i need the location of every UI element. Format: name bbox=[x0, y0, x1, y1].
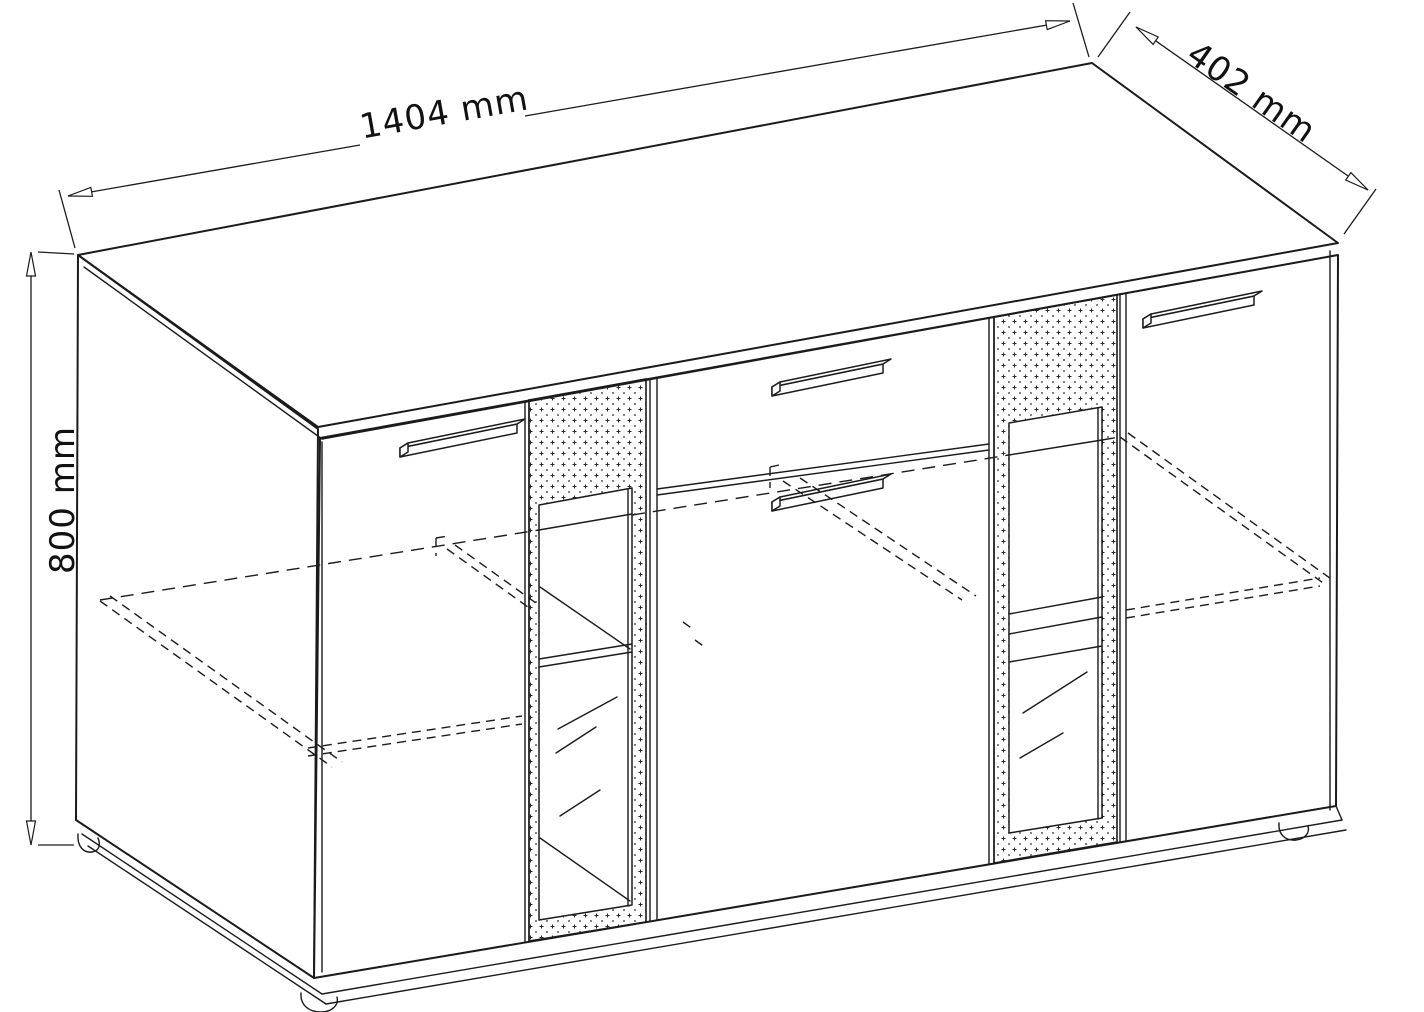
cabinet-body bbox=[76, 63, 1338, 978]
height-arrow-bottom bbox=[27, 821, 36, 845]
sideboard-dimension-diagram: 1404 mm 402 mm 800 mm bbox=[0, 0, 1424, 1012]
width-dimension-label: 1404 mm bbox=[357, 78, 532, 147]
height-dimension-label: 800 mm bbox=[43, 426, 83, 574]
depth-arrow-top bbox=[1136, 27, 1158, 44]
glass-door-left-window bbox=[539, 488, 632, 920]
technical-drawing-page: 1404 mm 402 mm 800 mm bbox=[0, 0, 1424, 1012]
depth-dimension-label: 402 mm bbox=[1179, 34, 1323, 152]
height-extension-line-top bbox=[38, 252, 74, 254]
depth-extension-line-left bbox=[1098, 12, 1130, 57]
glass-door-right bbox=[994, 295, 1117, 863]
width-extension-line-left bbox=[59, 190, 75, 248]
width-arrow-left bbox=[68, 187, 92, 196]
width-dimension-line-a bbox=[68, 145, 360, 196]
width-extension-line-right bbox=[1073, 3, 1089, 57]
foot-front-right bbox=[1279, 823, 1309, 840]
depth-extension-line-right bbox=[1344, 189, 1376, 234]
glass-door-left bbox=[529, 379, 646, 941]
dimension-height: 800 mm bbox=[27, 252, 84, 845]
plinth-right-corner-edge bbox=[1336, 806, 1342, 820]
width-arrow-right bbox=[1046, 21, 1070, 30]
depth-arrow-bottom bbox=[1346, 173, 1368, 190]
height-arrow-top bbox=[27, 252, 36, 276]
